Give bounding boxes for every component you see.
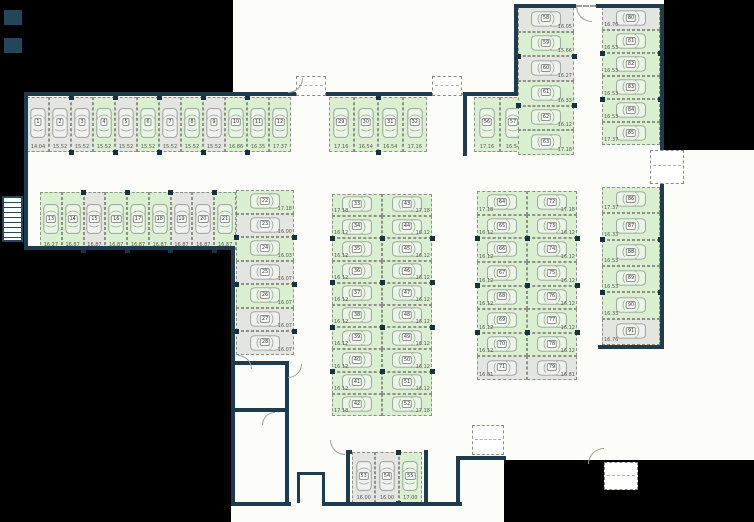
column-marker [600,237,605,242]
stall-dimension: 16.12 [479,230,493,236]
stall-number: 51 [402,378,412,386]
column-marker [330,236,335,241]
parking-stall-75[interactable]: 7516.12 [527,262,577,286]
stall-dimension: 16.12 [479,278,493,284]
stall-number: 52 [402,400,412,408]
parking-stall-27: 2716.07 [236,308,294,332]
parking-stall-26[interactable]: 2616.07 [236,284,294,308]
stall-number: 45 [402,245,412,253]
stall-number: 41 [352,378,362,386]
stall-number: 81 [626,37,636,45]
stall-number: 43 [402,200,412,208]
stall-dimension: 16.12 [561,278,575,284]
stall-number: 88 [626,248,636,256]
wall-segment [231,502,291,506]
column-marker [380,236,385,241]
column-marker [292,235,297,240]
stall-number: 71 [497,363,507,371]
column-marker [430,280,435,285]
outside-area [0,0,233,92]
wall-segment [463,92,518,96]
parking-stall-5: 515.52 [115,97,137,152]
parking-stall-44[interactable]: 4416.12 [382,216,432,238]
stall-number: 74 [547,245,557,253]
parking-stall-88[interactable]: 8816.53 [602,240,660,266]
stall-number: 73 [547,222,557,230]
column-marker [330,280,335,285]
parking-stall-8[interactable]: 815.52 [181,97,203,152]
door-arc-icon [576,6,592,22]
stall-dimension: 16.12 [334,364,348,370]
stall-dimension: 17.16 [480,144,494,150]
column-marker [525,236,530,241]
door-arc-icon [238,355,252,369]
parking-stall-67[interactable]: 6716.12 [477,262,527,286]
outside-area [664,0,754,150]
parking-stall-56[interactable]: 5617.16 [474,97,500,152]
column-marker [516,103,521,108]
parking-stall-1: 114.04 [27,97,49,152]
parking-stall-36[interactable]: 3616.12 [332,261,382,283]
stall-number: 55 [405,472,415,480]
stall-dimension: 16.07 [278,347,292,353]
stall-number: 27 [260,315,270,323]
wall-segment [514,4,518,96]
stall-number: 66 [497,245,507,253]
parking-stall-23: 2316.00 [236,214,294,238]
stall-number: 53 [358,472,368,480]
parking-stall-25: 2516.07 [236,261,294,285]
stall-number: 44 [402,222,412,230]
stall-number: 21 [220,215,230,223]
stall-number: 76 [547,292,557,300]
wall-segment [297,472,300,503]
stall-dimension: 17.18 [558,147,572,153]
parking-stall-35[interactable]: 3516.12 [332,238,382,260]
stall-number: 70 [497,340,507,348]
floor-plan: 114.04215.52315.52415.52515.52615.52715.… [0,0,754,522]
stall-dimension: 16.53 [604,284,618,290]
stall-number: 79 [547,363,557,371]
parking-stall-69[interactable]: 6916.12 [477,309,527,333]
stall-number: 57 [508,118,518,126]
parking-stall-30[interactable]: 3016.54 [354,97,379,152]
parking-stall-3: 315.52 [71,97,93,152]
stall-number: 47 [402,289,412,297]
stall-number: 35 [352,245,362,253]
stall-dimension: 16.54 [383,144,397,150]
stall-dimension: 16.33 [604,232,618,238]
wall-segment [297,472,325,475]
stall-dimension: 16.53 [604,91,618,97]
stall-dimension: 14.04 [31,144,45,150]
column-marker [396,450,401,455]
stall-number: 10 [231,118,241,126]
parking-stall-9: 915.52 [203,97,225,152]
column-marker [575,330,580,335]
stall-dimension: 15.52 [75,144,89,150]
parking-stall-90[interactable]: 9016.33 [602,292,660,318]
stall-number: 65 [497,222,507,230]
stall-number: 7 [166,118,173,126]
wall-segment [24,92,28,250]
stall-dimension: 16.12 [416,230,430,236]
parking-stall-21[interactable]: 2116.87 [214,192,236,250]
parking-stall-42[interactable]: 4217.18 [332,394,382,416]
parking-stall-51[interactable]: 5116.12 [382,372,432,394]
vent-hatch-icon [432,76,462,96]
stall-dimension: 16.12 [561,348,575,354]
parking-stall-14[interactable]: 1416.87 [62,192,84,250]
stall-number: 34 [352,222,362,230]
wall-segment [463,92,467,156]
column-marker [430,236,435,241]
parking-stall-70[interactable]: 7016.12 [477,333,527,357]
parking-stall-16[interactable]: 1616.87 [105,192,127,250]
column-marker [234,235,239,240]
stall-number: 48 [402,311,412,319]
parking-stall-82[interactable]: 8216.53 [602,53,660,76]
column-marker [125,190,130,195]
wall-segment [322,472,325,503]
stall-number: 62 [541,113,551,121]
parking-stall-50[interactable]: 5016.12 [382,349,432,371]
stall-number: 22 [260,197,270,205]
parking-stall-61[interactable]: 6116.33 [518,81,574,106]
parking-stall-86[interactable]: 8617.37 [602,187,660,213]
column-marker [525,283,530,288]
column-marker [376,150,381,155]
column-marker [600,97,605,102]
stall-dimension: 16.12 [416,253,430,259]
stall-dimension: 15.52 [141,144,155,150]
parking-stall-60: 6016.27 [518,56,574,81]
stall-number: 80 [626,14,636,22]
stall-number: 1 [34,118,41,126]
parking-stall-77[interactable]: 7716.12 [527,309,577,333]
wall-segment [24,246,235,250]
stall-number: 82 [626,60,636,68]
parking-stall-38[interactable]: 3816.12 [332,305,382,327]
stall-dimension: 16.86 [229,144,243,150]
stall-number: 26 [260,291,270,299]
stall-number: 3 [78,118,85,126]
stall-dimension: 16.81 [479,372,493,378]
column-marker [201,150,206,155]
vent-hatch-icon [604,462,638,490]
stall-dimension: 17.18 [416,208,430,214]
stall-dimension: 16.12 [479,348,493,354]
stall-dimension: 17.16 [408,144,422,150]
parking-stall-68[interactable]: 6816.12 [477,286,527,310]
stall-dimension: 16.12 [416,319,430,325]
door-arc-icon [288,364,302,378]
parking-stall-64[interactable]: 6417.18 [477,191,527,215]
parking-stall-15: 1516.87 [84,192,106,250]
stall-number: 25 [260,268,270,276]
stall-number: 87 [626,222,636,230]
stall-number: 30 [361,118,371,126]
wall-segment [346,450,350,505]
stall-dimension: 15.52 [163,144,177,150]
stall-dimension: 17.37 [273,144,287,150]
stall-dimension: 16.12 [416,275,430,281]
parking-stall-48[interactable]: 4816.12 [382,305,432,327]
stall-number: 46 [402,267,412,275]
stall-dimension: 16.12 [561,325,575,331]
stall-dimension: 16.12 [416,297,430,303]
stall-dimension: 16.12 [416,341,430,347]
stall-number: 6 [144,118,151,126]
column-marker [292,282,297,287]
wall-segment [598,345,664,349]
parking-stall-34[interactable]: 3416.12 [332,216,382,238]
stall-number: 89 [626,274,636,282]
stall-number: 33 [352,200,362,208]
stall-number: 4 [100,118,107,126]
stall-number: 64 [497,198,507,206]
parking-stall-71: 7116.81 [477,356,527,380]
wall-segment [285,361,289,502]
stall-number: 63 [541,138,551,146]
parking-stall-31[interactable]: 3116.54 [378,97,403,152]
parking-stall-6[interactable]: 615.52 [137,97,159,152]
stall-number: 37 [352,289,362,297]
stall-number: 11 [253,118,263,126]
stall-dimension: 16.12 [334,319,348,325]
vent-hatch-icon [650,150,684,184]
stall-dimension: 17.18 [561,207,575,213]
stall-number: 50 [402,356,412,364]
stall-number: 90 [626,301,636,309]
parking-stall-17[interactable]: 1716.87 [127,192,149,250]
stall-dimension: 16.12 [334,230,348,236]
parking-stall-13[interactable]: 1316.27 [40,192,62,250]
parking-stall-49[interactable]: 4916.12 [382,327,432,349]
stall-number: 38 [352,311,362,319]
parking-stall-78[interactable]: 7816.12 [527,333,577,357]
stall-number: 28 [260,338,270,346]
stall-number: 58 [541,14,551,22]
stall-number: 16 [111,215,121,223]
vent-hatch-icon [472,425,504,455]
parking-stall-46[interactable]: 4616.12 [382,261,432,283]
stall-dimension: 17.18 [278,206,292,212]
stall-dimension: 16.12 [558,122,572,128]
parking-stall-40[interactable]: 4016.12 [332,349,382,371]
column-marker [245,150,250,155]
parking-stall-53: 5316.00 [352,452,375,503]
parking-stall-59[interactable]: 5915.66 [518,32,574,57]
parking-stall-11[interactable]: 1116.35 [247,97,269,152]
parking-stall-65[interactable]: 6516.12 [477,215,527,239]
column-marker [69,150,74,155]
stall-number: 13 [46,215,56,223]
column-marker [212,190,217,195]
wall-segment [514,4,576,8]
column-marker [380,325,385,330]
column-marker [113,150,118,155]
stall-dimension: 16.53 [604,258,618,264]
parking-stall-10[interactable]: 1016.86 [225,97,247,152]
stall-dimension: 16.35 [251,144,265,150]
parking-stall-84[interactable]: 8416.53 [602,99,660,122]
stall-dimension: 16.76 [604,22,618,28]
column-marker [330,369,335,374]
parking-stall-32[interactable]: 3217.16 [403,97,428,152]
stall-number: 32 [410,118,420,126]
wall-segment [424,450,428,505]
stall-number: 49 [402,333,412,341]
column-marker [292,329,297,334]
parking-stall-37[interactable]: 3716.12 [332,283,382,305]
parking-stall-85[interactable]: 8517.37 [602,122,660,145]
door-arc-icon [262,412,275,425]
parking-stall-45[interactable]: 4516.12 [382,238,432,260]
stall-dimension: 16.53 [604,45,618,51]
parking-stall-18[interactable]: 1816.87 [149,192,171,250]
parking-stall-22[interactable]: 2217.18 [236,190,294,214]
parking-stall-76[interactable]: 7616.12 [527,286,577,310]
column-marker [600,51,605,56]
stall-dimension: 16.07 [278,276,292,282]
column-marker [330,325,335,330]
column-marker [475,283,480,288]
stall-number: 9 [210,118,217,126]
stall-number: 54 [382,472,392,480]
stall-number: 31 [385,118,395,126]
column-marker [575,236,580,241]
stall-dimension: 16.00 [356,495,370,501]
parking-stall-4[interactable]: 415.52 [93,97,115,152]
wall-segment [24,92,302,96]
stall-dimension: 15.52 [119,144,133,150]
stall-dimension: 16.12 [334,297,348,303]
parking-stall-73[interactable]: 7316.12 [527,215,577,239]
parking-stall-24[interactable]: 2416.03 [236,237,294,261]
parking-stall-89[interactable]: 8916.53 [602,266,660,292]
parking-stall-81[interactable]: 8116.53 [602,30,660,53]
column-marker [475,236,480,241]
stall-number: 77 [547,316,557,324]
parking-stall-19: 1916.87 [171,192,193,250]
stall-number: 18 [155,215,165,223]
stall-dimension: 17.18 [479,207,493,213]
stall-dimension: 16.07 [278,300,292,306]
stall-dimension: 16.76 [604,337,618,343]
parking-stall-43[interactable]: 4317.18 [382,194,432,216]
stall-number: 75 [547,269,557,277]
parking-stall-91: 9116.76 [602,319,660,345]
stall-number: 15 [89,215,99,223]
door-arc-icon [330,440,345,455]
column-marker [475,330,480,335]
stall-dimension: 16.12 [416,386,430,392]
stall-number: 61 [541,88,551,96]
column-marker [575,283,580,288]
parking-stall-28: 2816.07 [236,331,294,355]
parking-stall-39[interactable]: 3916.12 [332,327,382,349]
stall-dimension: 16.33 [558,98,572,104]
door-arc-icon [588,448,604,464]
stall-dimension: 15.52 [97,144,111,150]
parking-stall-80: 8016.76 [602,7,660,30]
stall-dimension: 15.52 [185,144,199,150]
stall-dimension: 16.12 [479,325,493,331]
stall-dimension: 15.52 [207,144,221,150]
column-marker [600,290,605,295]
wall-segment [231,246,235,502]
wall-segment [456,456,506,460]
column-marker [430,369,435,374]
stall-number: 78 [547,340,557,348]
stall-number: 36 [352,267,362,275]
stall-number: 67 [497,269,507,277]
parking-stall-12[interactable]: 1217.37 [269,97,291,152]
stall-dimension: 16.12 [561,254,575,260]
stall-number: 84 [626,106,636,114]
wall-segment [596,4,662,8]
wall-segment [231,408,287,412]
stall-number: 91 [626,327,636,335]
parking-stall-52[interactable]: 5217.18 [382,394,432,416]
stairs-icon [2,196,23,242]
stall-dimension: 16.00 [380,495,394,501]
stall-number: 40 [352,356,362,364]
parking-stall-7: 715.52 [159,97,181,152]
stall-dimension: 16.12 [334,386,348,392]
parking-stall-83[interactable]: 8316.53 [602,76,660,99]
parking-stall-72[interactable]: 7217.18 [527,191,577,215]
parking-stall-29[interactable]: 2917.16 [329,97,354,152]
parking-stall-63[interactable]: 6317.18 [518,130,574,155]
stall-dimension: 16.12 [479,301,493,307]
parking-stall-2: 215.52 [49,97,71,152]
parking-stall-74[interactable]: 7416.12 [527,238,577,262]
parking-stall-62[interactable]: 6216.12 [518,106,574,131]
stall-number: 60 [541,64,551,72]
stall-number: 17 [133,215,143,223]
stall-number: 5 [122,118,129,126]
outside-area [0,246,231,522]
stall-number: 14 [67,215,77,223]
stall-number: 59 [541,39,551,47]
parking-stall-47[interactable]: 4716.12 [382,283,432,305]
stall-number: 2 [56,118,63,126]
stall-number: 29 [336,118,346,126]
stall-dimension: 16.12 [561,230,575,236]
parking-stall-79: 7916.81 [527,356,577,380]
parking-stall-41[interactable]: 4116.12 [332,372,382,394]
stall-dimension: 16.12 [334,275,348,281]
wall-segment [322,502,462,506]
parking-stall-87[interactable]: 8716.33 [602,213,660,239]
stall-number: 85 [626,129,636,137]
parking-stall-54: 5416.00 [375,452,398,503]
stall-dimension: 16.07 [278,323,292,329]
stall-dimension: 17.37 [604,205,618,211]
stall-dimension: 16.53 [604,68,618,74]
stall-number: 72 [547,198,557,206]
parking-stall-55[interactable]: 5517.00 [399,452,422,503]
stall-dimension: 16.12 [334,341,348,347]
stall-dimension: 17.00 [403,495,417,501]
stall-number: 12 [275,118,285,126]
stall-dimension: 16.33 [604,311,618,317]
stall-dimension: 16.12 [479,254,493,260]
parking-stall-66[interactable]: 6616.12 [477,238,527,262]
parking-stall-33[interactable]: 3317.18 [332,194,382,216]
